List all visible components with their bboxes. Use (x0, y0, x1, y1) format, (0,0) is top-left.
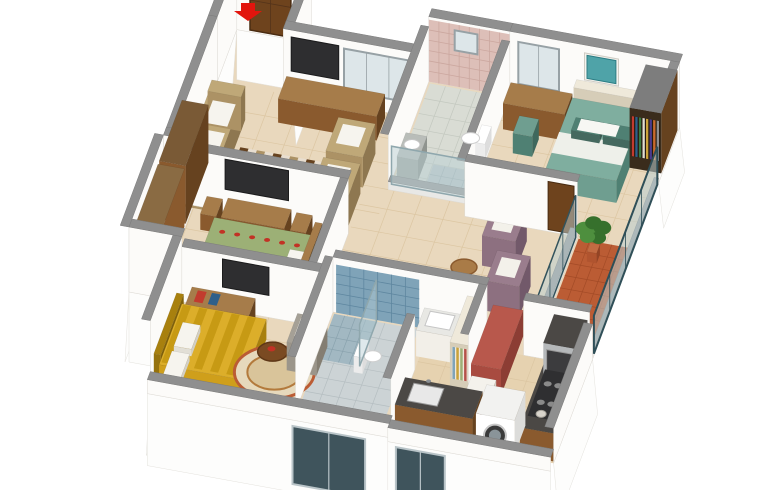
kettle (536, 410, 546, 417)
toilet2-bowl (364, 351, 381, 362)
toilet-bowl (462, 133, 480, 144)
round-table (258, 342, 288, 361)
bed2-art (587, 55, 616, 83)
shelf-towels (452, 347, 467, 382)
sink-faucet (426, 379, 431, 383)
round-table-decor (267, 346, 275, 351)
bath1-window (455, 30, 478, 54)
basin (404, 140, 420, 150)
bed2-window (518, 42, 559, 91)
floorplan-stage (0, 0, 780, 490)
floorplan-canvas (0, 0, 780, 490)
